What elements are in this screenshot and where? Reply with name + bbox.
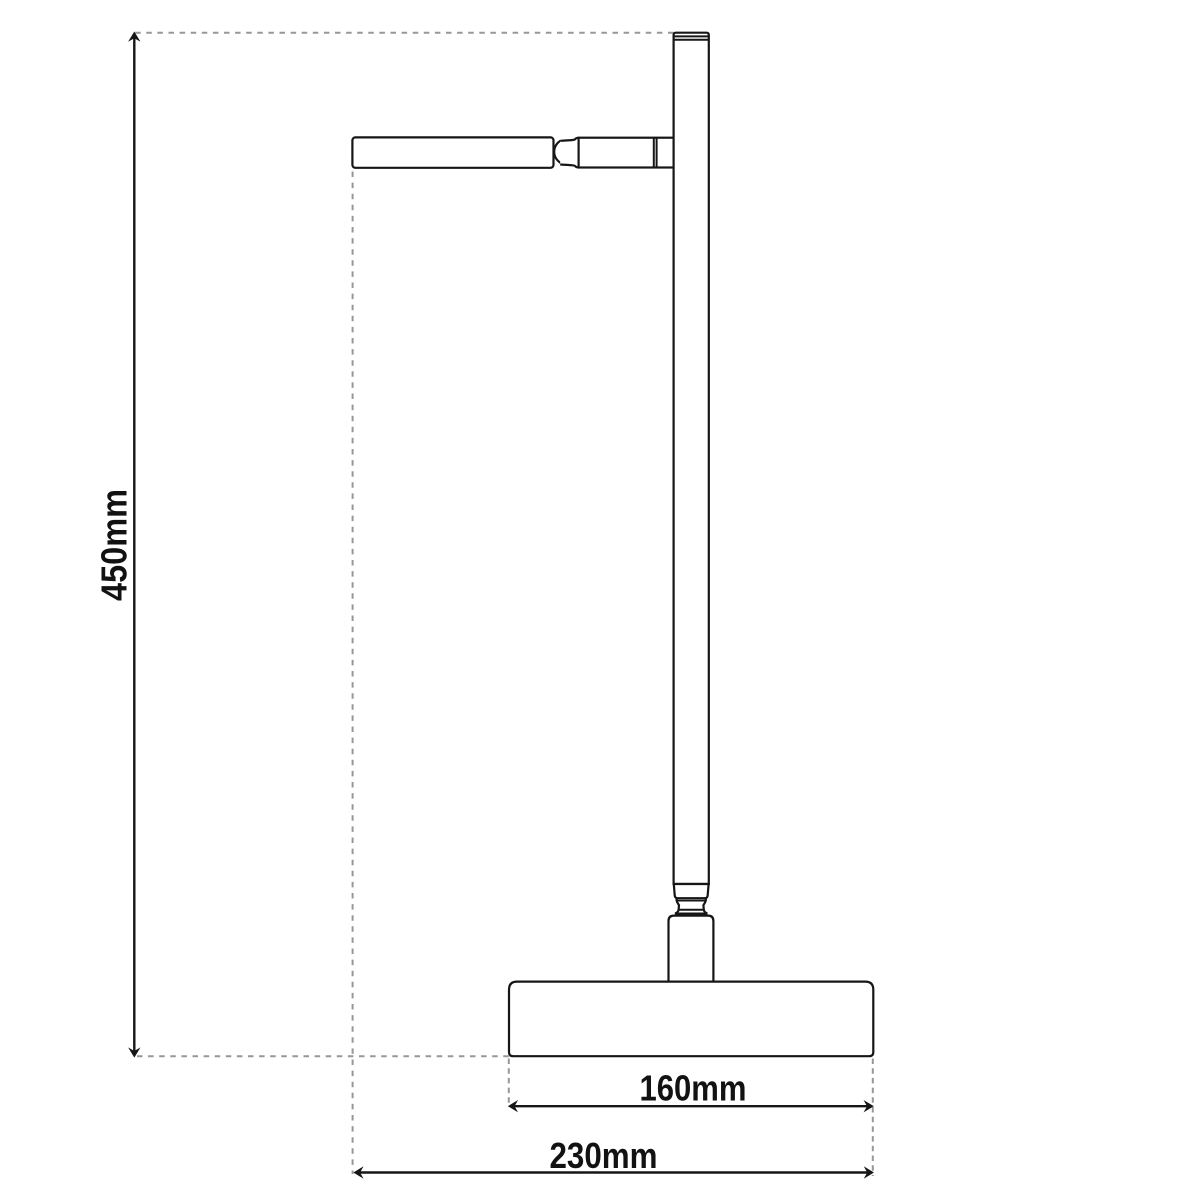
svg-text:450mm: 450mm bbox=[94, 489, 135, 601]
svg-text:230mm: 230mm bbox=[550, 1135, 658, 1176]
svg-text:160mm: 160mm bbox=[640, 1068, 747, 1109]
